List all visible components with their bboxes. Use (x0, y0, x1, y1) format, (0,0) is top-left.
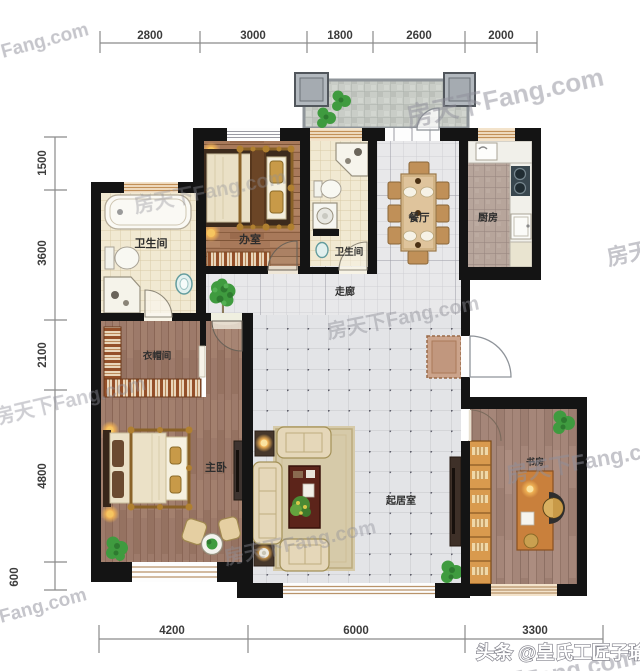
svg-text:4200: 4200 (159, 625, 185, 637)
svg-text:4800: 4800 (37, 463, 49, 489)
svg-text:卫生间: 卫生间 (335, 246, 364, 258)
svg-text:餐厅: 餐厅 (408, 211, 430, 224)
svg-text:办室: 办室 (239, 232, 261, 246)
svg-text:起居室: 起居室 (385, 494, 416, 507)
svg-text:厨房: 厨房 (478, 211, 498, 224)
svg-text:2100: 2100 (37, 342, 49, 368)
svg-text:1800: 1800 (327, 30, 353, 42)
svg-text:3000: 3000 (240, 30, 266, 42)
svg-text:头条 @皇氏工匠子瑜: 头条 @皇氏工匠子瑜 (476, 642, 640, 663)
svg-text:2600: 2600 (406, 30, 432, 42)
svg-text:1500: 1500 (37, 150, 49, 176)
svg-text:2000: 2000 (488, 30, 514, 42)
svg-text:3600: 3600 (37, 240, 49, 266)
svg-text:走廊: 走廊 (334, 285, 355, 298)
svg-text:6000: 6000 (343, 625, 369, 637)
svg-text:卫生间: 卫生间 (135, 236, 168, 250)
svg-text:3300: 3300 (522, 625, 548, 637)
svg-text:衣帽间: 衣帽间 (143, 350, 172, 362)
svg-text:2800: 2800 (137, 30, 163, 42)
svg-text:600: 600 (9, 567, 21, 586)
svg-text:主卧: 主卧 (205, 460, 227, 474)
